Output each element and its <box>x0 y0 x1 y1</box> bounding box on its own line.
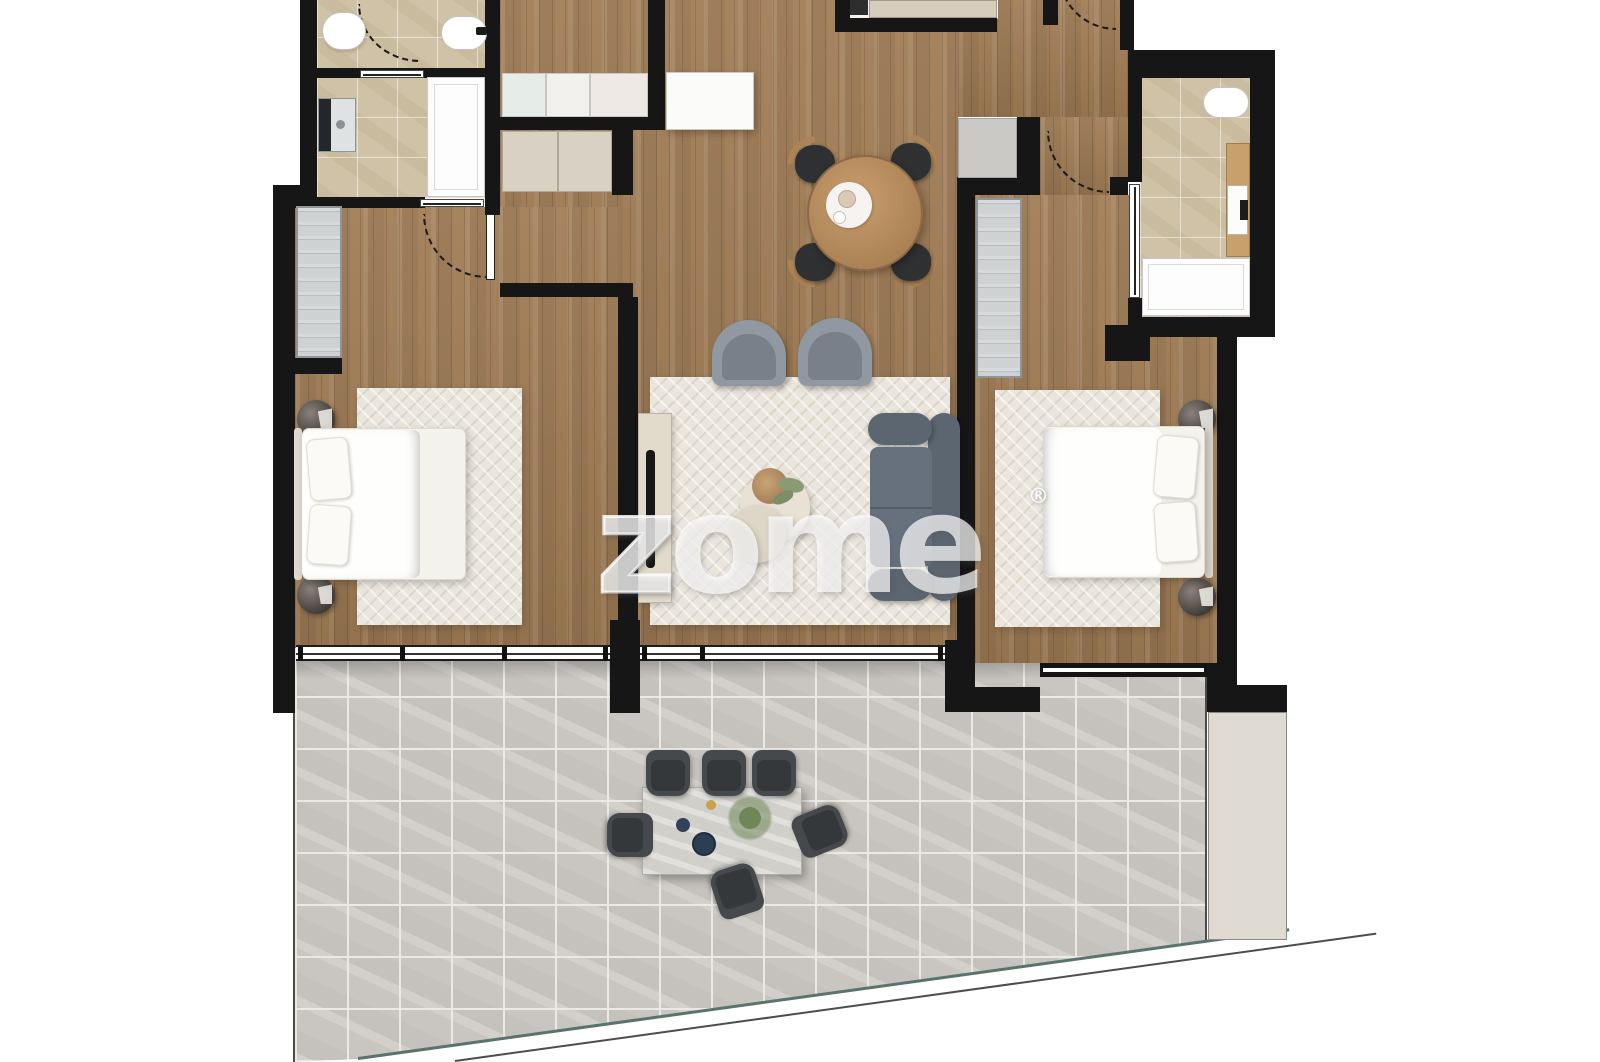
window-mullion <box>400 647 405 661</box>
bed-headboard <box>1205 426 1213 578</box>
window-mullion <box>502 647 507 661</box>
wall <box>500 117 648 130</box>
wall <box>1217 337 1237 680</box>
window-mullion <box>938 647 943 661</box>
wall <box>500 283 633 297</box>
bed-pillow <box>1153 501 1199 564</box>
door-leaf-bedroom-left <box>486 214 495 280</box>
vanity-tap-right <box>1240 200 1248 220</box>
armchair <box>712 320 786 386</box>
wall <box>1128 317 1275 337</box>
bathroom-sink-faucet <box>336 120 345 129</box>
wall <box>1250 50 1275 337</box>
window-mullion <box>298 647 303 661</box>
toilet <box>322 12 366 50</box>
dining-cup <box>833 211 846 224</box>
window-mullion <box>603 647 608 661</box>
outdoor-chair <box>607 813 653 857</box>
window-mullion <box>700 647 705 661</box>
wardrobe-bedroom-left <box>296 206 342 358</box>
bed-pillow <box>306 504 352 567</box>
kitchen-counter-1 <box>502 73 546 117</box>
outdoor-dishes <box>692 832 716 856</box>
sliding-door-bathroom-right <box>1129 184 1140 298</box>
wall <box>300 0 317 197</box>
shower-tray-line <box>1148 264 1244 310</box>
cabinet-divider <box>557 132 559 191</box>
bidet-tap <box>476 27 487 35</box>
window-bedroom-left <box>296 645 610 661</box>
kitchen-island <box>666 72 754 130</box>
outdoor-cup <box>706 800 716 810</box>
wall <box>612 130 633 195</box>
utility-cabinet <box>869 0 997 18</box>
kitchen-counter-2 <box>546 73 590 117</box>
window-living-room <box>640 645 945 661</box>
wall <box>975 687 1040 712</box>
floor-plan: zzome ® <box>0 0 1600 1062</box>
wall <box>1105 325 1150 361</box>
nightstand <box>297 576 335 614</box>
watermark-text: zome <box>596 476 981 614</box>
wall <box>957 177 1040 195</box>
wall <box>1120 0 1134 50</box>
nightstand <box>1178 578 1216 616</box>
wall <box>485 0 500 215</box>
wall <box>648 0 665 130</box>
wall <box>1043 0 1058 25</box>
wardrobe-bedroom-right <box>976 198 1022 378</box>
shower-tray-line <box>434 84 478 190</box>
armchair <box>798 318 872 386</box>
wall <box>945 640 975 712</box>
outdoor-chair <box>752 750 796 796</box>
bed-pillow <box>305 436 352 501</box>
bed-headboard <box>294 428 302 580</box>
outdoor-chair <box>646 750 690 796</box>
kitchen-counter-3 <box>590 73 648 117</box>
wall <box>1128 50 1142 182</box>
outdoor-table <box>642 787 802 875</box>
wardrobe-niche <box>295 358 342 374</box>
wall <box>1110 177 1128 195</box>
wall <box>273 207 295 713</box>
hall-column-cabinet <box>958 118 1017 178</box>
bed-duvet <box>1043 428 1161 576</box>
wall <box>835 18 997 32</box>
bed-pillow <box>1152 434 1199 499</box>
toilet-right <box>1203 87 1249 118</box>
sliding-door-bathroom-left <box>420 199 484 207</box>
sliding-door-bathrooms <box>360 70 424 78</box>
hall-cabinet <box>502 131 612 192</box>
wall <box>1210 685 1287 712</box>
window-mullion <box>642 647 647 661</box>
window-glass-line <box>1043 668 1204 672</box>
window-bedroom-right <box>1040 663 1207 677</box>
wall <box>1017 117 1040 177</box>
outdoor-chair <box>702 750 746 796</box>
shower-right <box>1142 258 1250 316</box>
wall <box>610 620 640 713</box>
terrace-side-panel <box>1208 712 1287 940</box>
sofa-arm <box>868 413 932 445</box>
dining-plate-small <box>838 190 856 208</box>
outdoor-dish-small <box>676 818 690 832</box>
watermark-registered-mark: ® <box>1028 484 1049 508</box>
shower-left <box>427 77 485 197</box>
